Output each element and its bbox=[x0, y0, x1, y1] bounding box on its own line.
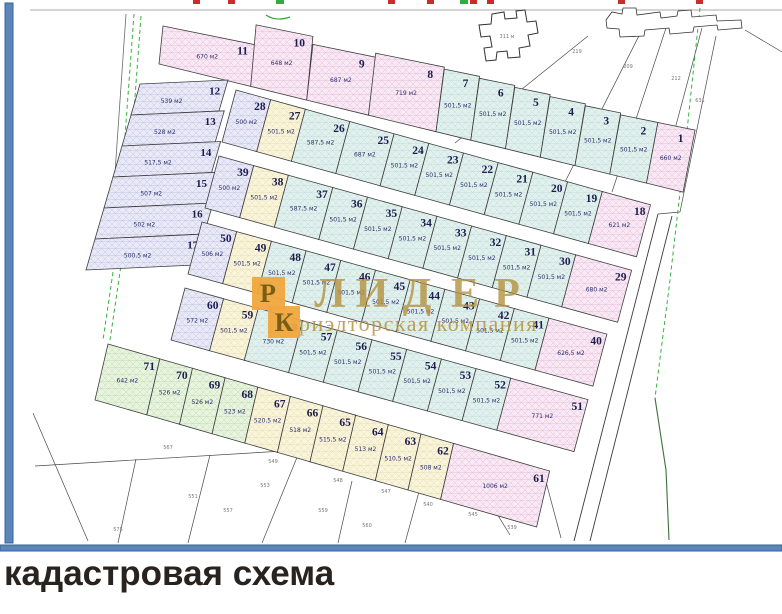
plot-15: 15507 м2 bbox=[104, 172, 217, 208]
bg-parcel-label: 545 bbox=[468, 512, 478, 518]
plot-area: 501,5 м2 bbox=[468, 255, 496, 262]
plot-area: 501,5 м2 bbox=[391, 163, 419, 170]
plot-number: 67 bbox=[274, 398, 286, 410]
plot-area: 730 м2 bbox=[263, 338, 285, 345]
bg-parcel-label: 548 bbox=[333, 478, 343, 484]
plot-number: 12 bbox=[209, 85, 221, 97]
plot-number: 55 bbox=[390, 351, 402, 363]
frame-bottom-bar bbox=[0, 545, 782, 551]
plot-area: 526 м2 bbox=[159, 390, 181, 397]
plot-area: 719 м2 bbox=[395, 90, 417, 97]
plot-area: 501,5 м2 bbox=[403, 378, 431, 385]
plot-area: 501,5 м2 bbox=[479, 111, 507, 118]
plot-area: 621 м2 bbox=[609, 222, 631, 229]
bg-parcel-label: 539 bbox=[507, 525, 517, 531]
watermark-initial-1: Р bbox=[260, 279, 276, 308]
plot-number: 40 bbox=[590, 336, 602, 348]
plot-area: 501,5 м2 bbox=[549, 129, 577, 136]
plot-area: 506 м2 bbox=[202, 251, 224, 258]
plot-area: 626,5 м2 bbox=[557, 350, 585, 357]
plot-number: 69 bbox=[209, 380, 221, 392]
plot-number: 52 bbox=[494, 380, 506, 392]
clipped-text-mark bbox=[470, 0, 477, 4]
plot-area: 501,5 м2 bbox=[495, 191, 523, 198]
plot-area: 687 м2 bbox=[330, 77, 352, 84]
plot-area: 501,5 м2 bbox=[620, 147, 648, 154]
plot-area: 680 м2 bbox=[586, 287, 608, 294]
plot-number: 61 bbox=[533, 473, 545, 485]
plot-number: 35 bbox=[386, 208, 398, 220]
plot-area: 500,5 м2 bbox=[124, 252, 152, 259]
plot-area: 648 м2 bbox=[271, 60, 293, 67]
bg-parcel-label: 559 bbox=[318, 508, 328, 514]
plot-number: 14 bbox=[200, 147, 212, 159]
plot-area: 501,5 м2 bbox=[433, 245, 461, 252]
plot-area: 539 м2 bbox=[161, 98, 183, 105]
plot-number: 48 bbox=[290, 252, 302, 264]
plot-number: 37 bbox=[316, 189, 328, 201]
plot-number: 62 bbox=[437, 445, 449, 457]
page: { "frame": { "caption": "кадастровая схе… bbox=[0, 0, 782, 614]
watermark-initial-2: К bbox=[275, 308, 294, 337]
plot-number: 49 bbox=[255, 243, 267, 255]
clipped-text-mark bbox=[460, 0, 468, 4]
plot-area: 642 м2 bbox=[117, 378, 139, 385]
plot-area: 528 м2 bbox=[154, 129, 176, 136]
plot-10: 10648 м2 bbox=[251, 25, 313, 100]
plot-number: 33 bbox=[455, 227, 467, 239]
plot-number: 64 bbox=[372, 427, 384, 439]
building-label: 311 м bbox=[500, 34, 515, 40]
plot-13: 13528 м2 bbox=[122, 111, 224, 146]
bg-parcel-label: 212 bbox=[671, 76, 681, 82]
plot-number: 31 bbox=[524, 247, 536, 259]
plot-number: 54 bbox=[425, 360, 437, 372]
plot-area: 687 м2 bbox=[354, 152, 376, 159]
plot-area: 587,5 м2 bbox=[290, 205, 318, 212]
bg-parcel-label: 549 bbox=[268, 459, 278, 465]
plot-area: 501,5 м2 bbox=[538, 274, 566, 281]
plot-area: 501,5 м2 bbox=[425, 172, 453, 179]
plot-number: 23 bbox=[447, 154, 459, 166]
plot-area: 1006 м2 bbox=[482, 483, 508, 490]
plot-area: 501,5 м2 bbox=[299, 349, 327, 356]
plot-area: 500 м2 bbox=[219, 185, 241, 192]
plot-area: 507 м2 bbox=[140, 191, 162, 198]
plot-area: 501,5 м2 bbox=[334, 359, 362, 366]
plot-number: 65 bbox=[339, 417, 351, 429]
bg-parcel-label: 219 bbox=[572, 49, 582, 55]
plot-number: 15 bbox=[196, 178, 208, 190]
plot-number: 10 bbox=[294, 37, 306, 49]
plot-number: 8 bbox=[427, 69, 433, 81]
plot-number: 20 bbox=[551, 183, 563, 195]
plot-number: 5 bbox=[533, 97, 539, 109]
plot-area: 526 м2 bbox=[191, 399, 213, 406]
plot-area: 501,5 м2 bbox=[511, 337, 539, 344]
plot-number: 68 bbox=[241, 389, 253, 401]
plot-area: 501,5 м2 bbox=[267, 128, 295, 135]
clipped-text-mark bbox=[193, 0, 200, 4]
plot-number: 36 bbox=[351, 199, 363, 211]
plot-number: 28 bbox=[254, 101, 266, 113]
clipped-text-mark bbox=[618, 0, 625, 4]
plot-number: 6 bbox=[498, 88, 504, 100]
bg-parcel-label: 540 bbox=[423, 502, 433, 508]
caption: кадастровая схема bbox=[4, 554, 334, 594]
plot-number: 70 bbox=[176, 370, 188, 382]
plot-area: 501,5 м2 bbox=[369, 369, 397, 376]
plot-area: 501,5 м2 bbox=[364, 226, 392, 233]
plot-number: 25 bbox=[378, 135, 390, 147]
bg-parcel-label: 547 bbox=[381, 489, 391, 495]
bg-parcel-label: 209 bbox=[623, 64, 633, 70]
plot-area: 501,5 м2 bbox=[444, 102, 472, 109]
bg-parcel-label: 575 bbox=[113, 527, 123, 533]
plot-number: 2 bbox=[641, 125, 647, 137]
plot-number: 66 bbox=[307, 408, 319, 420]
plot-area: 501,5 м2 bbox=[514, 120, 542, 127]
frame-left-bar bbox=[5, 3, 13, 543]
clipped-text-mark bbox=[228, 0, 235, 4]
clipped-text-mark bbox=[427, 0, 434, 4]
plot-number: 34 bbox=[420, 218, 432, 230]
plot-area: 771 м2 bbox=[532, 413, 554, 420]
plot-number: 9 bbox=[359, 59, 365, 71]
plot-area: 523 м2 bbox=[224, 408, 246, 415]
plot-number: 29 bbox=[615, 272, 627, 284]
clipped-text-mark bbox=[487, 0, 494, 4]
clipped-text-mark bbox=[276, 0, 284, 4]
plot-area: 572 м2 bbox=[186, 317, 208, 324]
plot-number: 60 bbox=[207, 300, 219, 312]
plot-16: 16502 м2 bbox=[95, 203, 213, 239]
plot-area: 500 м2 bbox=[236, 119, 258, 126]
plot-area: 501,5 м2 bbox=[250, 194, 278, 201]
plot-number: 19 bbox=[586, 193, 598, 205]
plot-number: 26 bbox=[333, 123, 345, 135]
plot-area: 517,5 м2 bbox=[144, 160, 172, 167]
plot-number: 50 bbox=[220, 233, 232, 245]
plot-area: 501,5 м2 bbox=[564, 211, 592, 218]
plot-area: 518 м2 bbox=[289, 427, 311, 434]
plot-area: 501,5 м2 bbox=[399, 236, 427, 243]
plot-number: 22 bbox=[482, 164, 494, 176]
plot-number: 13 bbox=[205, 116, 217, 128]
clipped-text-mark bbox=[388, 0, 395, 4]
plot-number: 51 bbox=[571, 401, 583, 413]
plot-area: 670 м2 bbox=[196, 53, 218, 60]
plot-area: 508 м2 bbox=[420, 465, 442, 472]
plot-area: 501,5 м2 bbox=[233, 260, 261, 267]
plot-number: 53 bbox=[460, 370, 472, 382]
plot-14: 14517,5 м2 bbox=[113, 142, 221, 178]
plot-area: 501,5 м2 bbox=[220, 328, 248, 335]
plot-area: 501,5 м2 bbox=[473, 397, 501, 404]
plot-number: 3 bbox=[603, 116, 609, 128]
plot-number: 39 bbox=[237, 167, 249, 179]
plot-number: 1 bbox=[678, 133, 684, 145]
plot-area: 501,5 м2 bbox=[530, 201, 558, 208]
plot-area: 587,5 м2 bbox=[307, 139, 335, 146]
plot-number: 63 bbox=[405, 436, 417, 448]
plot-number: 30 bbox=[559, 256, 571, 268]
plot-area: 515,5 м2 bbox=[319, 437, 347, 444]
bg-parcel-label: 567 bbox=[163, 445, 173, 451]
bg-parcel-label: 631 bbox=[695, 98, 705, 104]
plot-number: 56 bbox=[355, 341, 367, 353]
plot-number: 21 bbox=[516, 174, 528, 186]
watermark-subtitle: риэлторская компания bbox=[299, 311, 538, 336]
bg-parcel-label: 551 bbox=[188, 494, 198, 500]
clipped-text-mark bbox=[696, 0, 703, 4]
plot-area: 501,5 м2 bbox=[268, 270, 296, 277]
plot-number: 59 bbox=[242, 310, 254, 322]
plot-area: 501,5 м2 bbox=[460, 182, 488, 189]
plot-area: 501,5 м2 bbox=[438, 388, 466, 395]
plot-area: 501,5 м2 bbox=[584, 138, 612, 145]
plot-number: 11 bbox=[237, 46, 248, 58]
bg-parcel-label: 557 bbox=[223, 508, 233, 514]
plot-area: 510,5 м2 bbox=[384, 455, 412, 462]
bg-parcel-label: 560 bbox=[362, 523, 372, 529]
plot-number: 18 bbox=[634, 206, 646, 218]
plot-area: 520,5 м2 bbox=[254, 418, 282, 425]
plot-area: 660 м2 bbox=[660, 155, 682, 162]
bg-parcel-label: 553 bbox=[260, 483, 270, 489]
plot-number: 4 bbox=[568, 106, 574, 118]
plot-number: 27 bbox=[289, 111, 301, 123]
plot-number: 24 bbox=[412, 145, 424, 157]
plot-area: 501,5 м2 bbox=[329, 216, 357, 223]
plot-number: 38 bbox=[272, 177, 284, 189]
plot-number: 71 bbox=[144, 361, 156, 373]
plot-area: 502 м2 bbox=[134, 222, 156, 229]
cadastral-map: 311 м11670 м210648 м29687 м28719 м27501,… bbox=[0, 0, 782, 553]
plot-area: 513 м2 bbox=[355, 446, 377, 453]
plot-12: 12539 м2 bbox=[131, 80, 228, 115]
plot-number: 16 bbox=[192, 209, 204, 221]
plot-number: 32 bbox=[490, 237, 502, 249]
plot-number: 7 bbox=[463, 78, 469, 90]
